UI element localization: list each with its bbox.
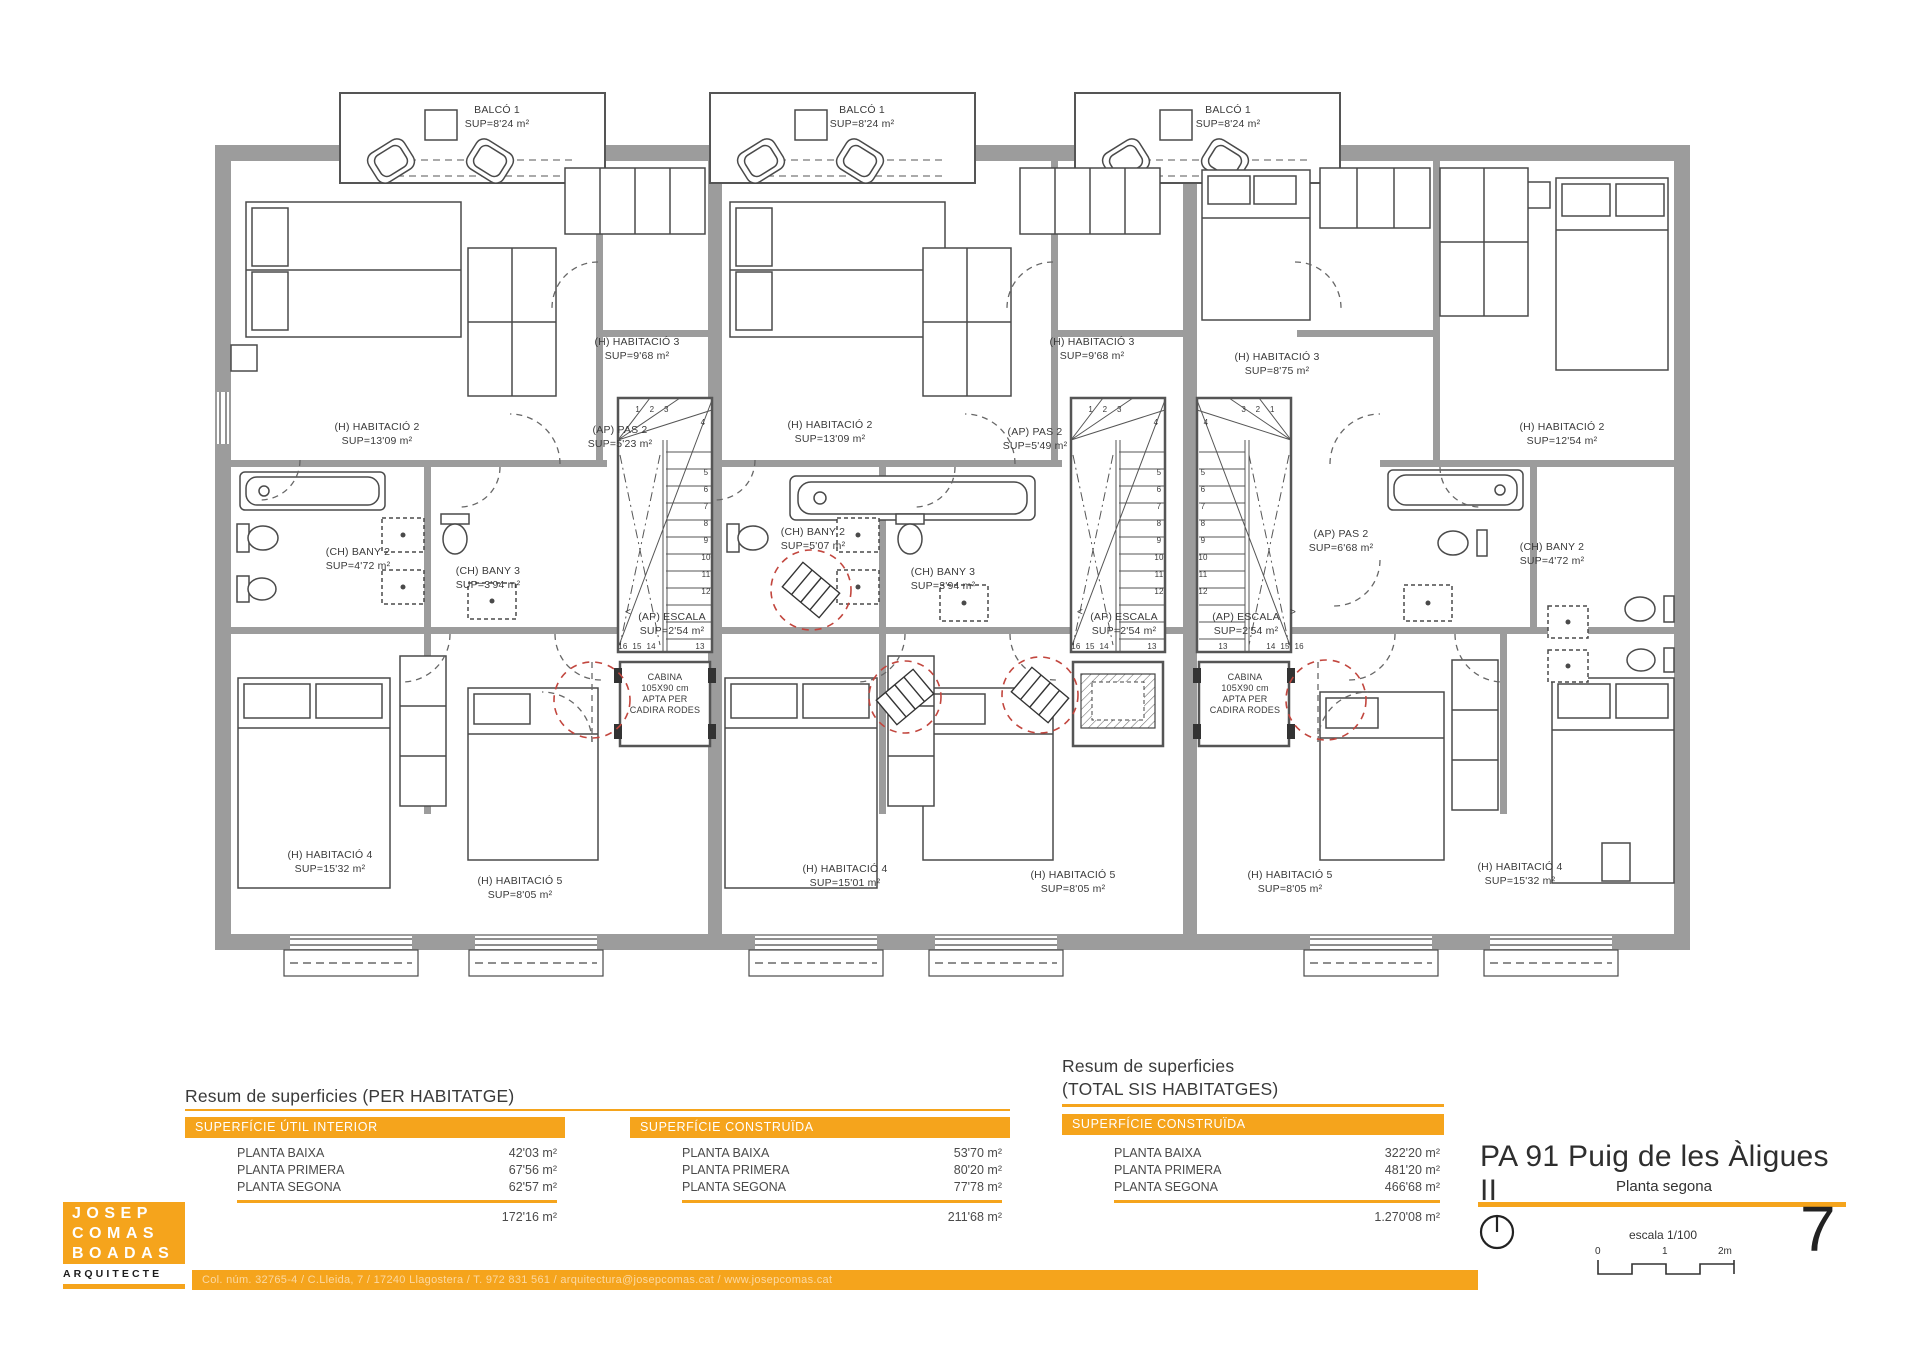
summary-left-heading: Resum de superficies (PER HABITATGE) [185, 1086, 514, 1107]
total-rule [682, 1200, 1002, 1203]
logo-line: COMAS [72, 1224, 185, 1244]
u3-stair-numbers-bottom: 14 15 16 [1266, 640, 1304, 654]
table-row: PLANTA BAIXA53'70 m² [630, 1145, 1002, 1162]
u3-escala-label: (AP) ESCALASUP=2'54 m² [1212, 611, 1280, 638]
sheet-subtitle: Planta segona [1480, 1178, 1848, 1195]
total-rule [1114, 1200, 1440, 1203]
u1-bany2-label: (CH) BANY 2SUP=4'72 m² [326, 546, 391, 573]
table-construida-habitatge: PLANTA BAIXA53'70 m² PLANTA PRIMERA80'20… [630, 1145, 1002, 1226]
table-header-construida-habitatge: SUPERFÍCIE CONSTRUÏDA [630, 1117, 1010, 1138]
u2-balcony-label: BALCÓ 1SUP=8'24 m² [830, 104, 895, 131]
logo-line: BOADAS [72, 1244, 185, 1264]
u3-stair-numbers-top: 3 2 1 [1241, 403, 1274, 417]
u2-stair-numbers-bottom: 16 15 14 [1071, 640, 1109, 654]
title-rule [1478, 1202, 1846, 1207]
u3-stair-number-4: 4 [1204, 416, 1209, 430]
u3-cabina-label: CABINA105X90 cmAPTA PERCADIRA RODES [1210, 672, 1280, 716]
table-header-construida-total: SUPERFÍCIE CONSTRUÏDA [1062, 1114, 1444, 1135]
u1-stair-number-4: 4 [701, 416, 706, 430]
u1-stair-numbers-bottom: 16 15 14 [618, 640, 656, 654]
u3-stair-direction-arrow: > [1290, 606, 1296, 620]
u2-stair-number-13: 13 [1147, 640, 1156, 654]
u1-stair-numbers-side: 56789101112 [701, 464, 710, 600]
table-row: PLANTA PRIMERA481'20 m² [1062, 1162, 1440, 1179]
u1-cabina-label: CABINA105X90 cmAPTA PERCADIRA RODES [630, 672, 700, 716]
u2-stair-number-4: 4 [1154, 416, 1159, 430]
u1-pas2-label: (AP) PAS 2SUP=5'23 m² [588, 424, 653, 451]
scale-tick-2m: 2m [1718, 1246, 1732, 1257]
u1-stair-numbers-top: 1 2 3 [635, 403, 668, 417]
table-total: 211'68 m² [630, 1209, 1002, 1226]
u2-bany3-label: (CH) BANY 3SUP=3'94 m² [911, 566, 976, 593]
table-row: PLANTA PRIMERA80'20 m² [630, 1162, 1002, 1179]
page-number: 7 [1800, 1192, 1860, 1266]
u1-stair-number-13: 13 [695, 640, 704, 654]
north-arrow-icon [1478, 1212, 1518, 1252]
u3-balcony-label: BALCÓ 1SUP=8'24 m² [1196, 104, 1261, 131]
table-row: PLANTA SEGONA62'57 m² [185, 1179, 557, 1196]
u3-habitacio4-label: (H) HABITACIÓ 4SUP=15'32 m² [1477, 861, 1562, 888]
u2-stair-numbers-top: 1 2 3 [1088, 403, 1121, 417]
u2-stair-numbers-side: 56789101112 [1154, 464, 1163, 600]
u1-habitacio4-label: (H) HABITACIÓ 4SUP=15'32 m² [287, 849, 372, 876]
logo-underline [63, 1284, 185, 1289]
u1-bany3-label: (CH) BANY 3SUP=3'94 m² [456, 565, 521, 592]
u2-stair-direction-arrow: < [1077, 606, 1083, 620]
u1-escala-label: (AP) ESCALASUP=2'54 m² [638, 611, 706, 638]
logo-line: JOSEP [72, 1204, 185, 1224]
total-rule [237, 1200, 557, 1203]
u2-bany2-label: (CH) BANY 2SUP=5'07 m² [781, 526, 846, 553]
footer-contact-bar: Col. núm. 32765-4 / C.Lleida, 7 / 17240 … [192, 1270, 1478, 1290]
u1-habitacio2-label: (H) HABITACIÓ 2SUP=13'09 m² [334, 421, 419, 448]
table-row: PLANTA BAIXA322'20 m² [1062, 1145, 1440, 1162]
u1-stair-direction-arrow: < [625, 606, 631, 620]
u2-habitacio5-label: (H) HABITACIÓ 5SUP=8'05 m² [1030, 869, 1115, 896]
table-construida-total: PLANTA BAIXA322'20 m² PLANTA PRIMERA481'… [1062, 1145, 1440, 1226]
u3-bany2-label: (CH) BANY 2SUP=4'72 m² [1520, 541, 1585, 568]
summary-right-heading-line2: (TOTAL SIS HABITATGES) [1062, 1079, 1278, 1100]
scale-tick-1: 1 [1662, 1246, 1668, 1257]
u3-habitacio3-label: (H) HABITACIÓ 3SUP=8'75 m² [1234, 351, 1319, 378]
u3-habitacio2-label: (H) HABITACIÓ 2SUP=12'54 m² [1519, 421, 1604, 448]
scale-label: escala 1/100 [1598, 1228, 1728, 1242]
u2-habitacio4-label: (H) HABITACIÓ 4SUP=15'01 m² [802, 863, 887, 890]
u2-escala-label: (AP) ESCALASUP=2'54 m² [1090, 611, 1158, 638]
table-util-interior: PLANTA BAIXA42'03 m² PLANTA PRIMERA67'56… [185, 1145, 557, 1226]
scale-bar [1596, 1258, 1741, 1278]
u1-habitacio5-label: (H) HABITACIÓ 5SUP=8'05 m² [477, 875, 562, 902]
table-row: PLANTA BAIXA42'03 m² [185, 1145, 557, 1162]
scale-tick-0: 0 [1595, 1246, 1601, 1257]
architect-logo: JOSEP COMAS BOADAS [63, 1202, 185, 1264]
table-row: PLANTA SEGONA466'68 m² [1062, 1179, 1440, 1196]
table-total: 172'16 m² [185, 1209, 557, 1226]
u2-pas2-label: (AP) PAS 2SUP=5'49 m² [1003, 426, 1068, 453]
summary-right-heading-line1: Resum de superficies [1062, 1056, 1234, 1077]
u3-pas2-label: (AP) PAS 2SUP=6'68 m² [1309, 528, 1374, 555]
u1-balcony-label: BALCÓ 1SUP=8'24 m² [465, 104, 530, 131]
table-row: PLANTA PRIMERA67'56 m² [185, 1162, 557, 1179]
table-row: PLANTA SEGONA77'78 m² [630, 1179, 1002, 1196]
sheet-title: PA 91 Puig de les Àligues II [1480, 1140, 1850, 1208]
heading-rule [1062, 1104, 1444, 1107]
table-header-util-interior: SUPERFÍCIE ÚTIL INTERIOR [185, 1117, 565, 1138]
table-total: 1.270'08 m² [1062, 1209, 1440, 1226]
u3-stair-number-13: 13 [1218, 640, 1227, 654]
plan-labels-layer: BALCÓ 1SUP=8'24 m²BALCÓ 1SUP=8'24 m²BALC… [0, 0, 1920, 1010]
u2-habitacio2-label: (H) HABITACIÓ 2SUP=13'09 m² [787, 419, 872, 446]
u1-habitacio3-label: (H) HABITACIÓ 3SUP=9'68 m² [594, 336, 679, 363]
u3-habitacio5-label: (H) HABITACIÓ 5SUP=8'05 m² [1247, 869, 1332, 896]
logo-tagline: ARQUITECTE [63, 1268, 187, 1280]
u2-habitacio3-label: (H) HABITACIÓ 3SUP=9'68 m² [1049, 336, 1134, 363]
plan-sheet: BALCÓ 1SUP=8'24 m²BALCÓ 1SUP=8'24 m²BALC… [0, 0, 1920, 1356]
heading-rule [185, 1109, 1010, 1111]
u3-stair-numbers-side: 56789101112 [1198, 464, 1207, 600]
